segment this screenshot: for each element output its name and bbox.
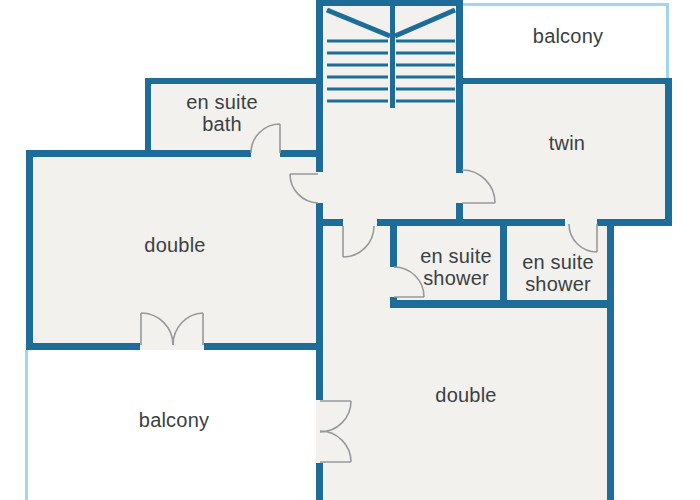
label-balcony-bottom: balcony <box>139 410 209 432</box>
wall-stair-right-stub <box>456 203 463 226</box>
balcony-bottom-rail-left <box>25 350 28 500</box>
door-opening-shower-left <box>390 267 397 297</box>
wall-showers-bottom <box>390 300 614 308</box>
balcony-top-rail-top <box>463 3 669 6</box>
wall-double-left-bottom-b <box>204 343 323 350</box>
door-opening-shower-right <box>565 219 597 226</box>
wall-center-column-lower <box>316 463 323 500</box>
balcony-top-rail-right <box>666 3 669 81</box>
wall-bath-left <box>145 78 151 157</box>
label-twin: twin <box>549 133 585 155</box>
room-stair-landing <box>323 6 456 219</box>
door-opening-bath <box>251 150 280 157</box>
label-en-suite-shower-right: en suite shower <box>506 252 610 295</box>
wall-bath-top <box>145 78 323 84</box>
door-opening-french-balcony-left <box>140 343 204 350</box>
label-double-bottom: double <box>435 385 496 407</box>
label-en-suite-shower-left: en suite shower <box>404 246 508 289</box>
wall-center-column-middle <box>316 203 323 400</box>
label-double-left: double <box>144 235 205 257</box>
wall-twin-right <box>665 78 672 226</box>
wall-stair-right-upper <box>456 0 463 173</box>
label-en-suite-bath: en suite bath <box>166 92 278 135</box>
door-opening-hall <box>343 219 377 226</box>
wall-mid-a <box>316 219 343 226</box>
wall-double-left-left <box>26 150 33 350</box>
wall-double-left-bottom-a <box>26 343 140 350</box>
floor-plan: balcony en suite bath twin double en sui… <box>0 0 700 500</box>
door-opening-double-left <box>316 172 323 203</box>
wall-double-left-top-a <box>26 150 251 157</box>
wall-double-left-top-b <box>280 150 323 157</box>
wall-center-column-upper <box>316 0 323 172</box>
door-opening-french-balcony-bottom <box>316 400 323 463</box>
wall-twin-top <box>456 78 672 84</box>
label-balcony-top: balcony <box>533 26 603 48</box>
wall-stair-top <box>318 0 463 6</box>
wall-mid-b <box>377 219 565 226</box>
door-opening-twin <box>456 173 463 203</box>
wall-shower1-left-upper <box>390 219 397 267</box>
